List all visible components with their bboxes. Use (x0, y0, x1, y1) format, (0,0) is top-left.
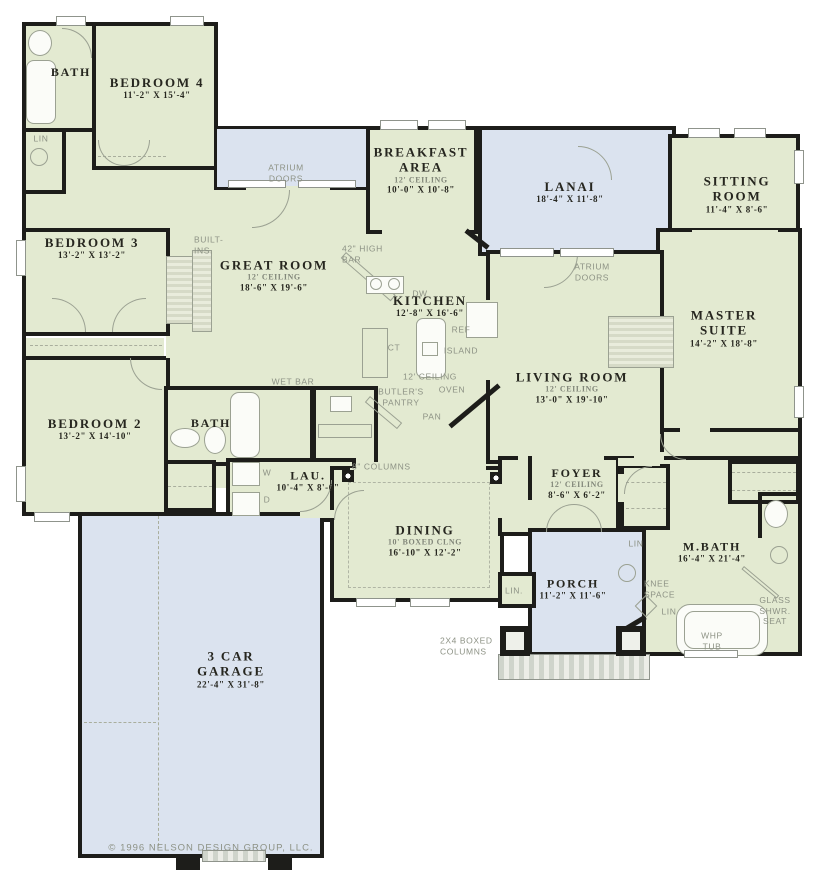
gallery-dashed-line (30, 345, 162, 346)
room-label-foyer: FOYER 12' CEILING 8'-6" X 6'-2" (548, 466, 606, 500)
fixture-wetbar-cabinet (318, 424, 372, 438)
garage-bay-divider (158, 516, 159, 846)
annotation-knee-space: KNEE SPACE (644, 578, 684, 599)
opening-dining-foyer (498, 482, 508, 518)
fixture-toilet-bath1 (28, 30, 52, 56)
annotation-linen: LIN (33, 134, 48, 145)
room-name: SITTING ROOM (699, 173, 775, 204)
annotation-dryer: D (264, 495, 271, 506)
room-name: BEDROOM 3 (45, 235, 140, 250)
window (170, 16, 204, 26)
window (356, 598, 396, 607)
room-name: LIVING ROOM (516, 369, 629, 384)
annotation-glass-shower: GLASS SHWR. SEAT (753, 595, 797, 627)
annotation-ct: CT (388, 343, 401, 354)
annotation-atrium-doors: ATRIUM DOORS (567, 261, 617, 282)
wall-segment (528, 456, 532, 500)
fixture-toilet-mbath (764, 500, 788, 528)
boxed-column (616, 626, 646, 656)
room-label-lanai: LANAI 18'-4" X 11'-8" (536, 179, 604, 205)
annotation-linen: LIN. (505, 586, 523, 597)
room-label-breakfast: BREAKFAST AREA 12' CEILING 10'-0" X 10'-… (373, 145, 469, 196)
annotation-atrium-doors: ATRIUM DOORS (261, 162, 311, 183)
porch-steps (498, 654, 650, 680)
room-name: DINING (388, 522, 462, 537)
fixture-burner (370, 278, 382, 290)
window (794, 150, 804, 184)
fixture-washer (232, 462, 260, 486)
room-name: 3 CAR GARAGE (181, 648, 281, 679)
room-label-greatroom: GREAT ROOM 12' CEILING 18'-6" X 19'-6" (220, 257, 328, 292)
room-label-bedroom4: BEDROOM 4 11'-2" X 15'-4" (110, 75, 205, 101)
room-dims: 11'-2" X 11'-6" (540, 591, 607, 602)
window (380, 120, 418, 130)
annotation-butlers-pantry: BUTLER'S PANTRY (371, 386, 431, 407)
annotation-8in-columns: 8" COLUMNS (352, 462, 411, 473)
room-name: M.BATH (678, 540, 746, 554)
room-dims: 12'-8" X 16'-6" (393, 308, 467, 319)
room-dims: 22'-4" X 31'-8" (181, 679, 281, 690)
room-label-master: MASTER SUITE 14'-2" X 18'-8" (681, 307, 767, 348)
room-dims: 18'-6" X 19'-6" (220, 282, 328, 293)
window (560, 248, 614, 257)
room-name: BATH (191, 416, 231, 430)
opening-master-corridor (680, 424, 710, 434)
annotation-linen: LIN (628, 539, 643, 550)
window (734, 128, 766, 138)
closet-rod (626, 508, 666, 509)
room-dims: 16'-10" X 12'-2" (388, 547, 462, 558)
room-dims: 13'-2" X 13'-2" (45, 250, 140, 261)
fixture-refrigerator (466, 302, 498, 338)
closet-rod (732, 472, 796, 473)
room-label-porch: PORCH 11'-2" X 11'-6" (540, 577, 607, 602)
annotation-washer: W (263, 468, 272, 479)
annotation-high-bar: 42" HIGH BAR (342, 243, 394, 264)
room-name: FOYER (548, 466, 606, 480)
room-dims: 11'-2" X 15'-4" (110, 90, 205, 101)
room-name: KITCHEN (393, 293, 467, 308)
annotation-wet-bar: WET BAR (272, 377, 315, 388)
annotation-ref: REF (452, 325, 471, 336)
fixture-fireplace-hearth (608, 316, 674, 368)
room-ceiling: 10' BOXED CLNG (388, 538, 462, 547)
fixture-wetbar-sink (330, 396, 352, 412)
room-ceiling: 12' CEILING (373, 175, 469, 184)
room-label-laundry: LAU. 10'-4" X 8'-6" (277, 469, 340, 494)
room-name: MASTER SUITE (681, 307, 767, 338)
opening-living-hall (618, 458, 660, 466)
garage-bay-divider (84, 722, 156, 723)
window (56, 16, 86, 26)
room-closet-right (728, 460, 800, 504)
window (410, 598, 450, 607)
room-label-living: LIVING ROOM 12' CEILING 13'-0" X 19'-10" (516, 369, 629, 404)
room-label-bath2: BATH (191, 416, 231, 430)
room-dims: 8'-6" X 6'-2" (548, 489, 606, 500)
annotation-whp-tub: WHP TUB (697, 630, 727, 651)
room-label-bedroom2: BEDROOM 2 13'-2" X 14'-10" (48, 416, 143, 442)
room-name: BATH (51, 65, 91, 79)
annotation-kitchen-ceiling: 12' CEILING (403, 372, 457, 383)
fixture-builtins-greatroom (166, 256, 194, 324)
window (16, 240, 26, 276)
column-8in (490, 472, 502, 484)
room-name: LAU. (277, 469, 340, 483)
fixture-island-sink (422, 342, 438, 356)
room-label-bath1: BATH (51, 65, 91, 79)
floor-plan: BATH BEDROOM 4 11'-2" X 15'-4" BEDROOM 3… (0, 0, 825, 884)
fixture-sink-bath2 (170, 428, 200, 448)
room-name: BEDROOM 2 (48, 416, 143, 431)
fixture-sink-mbath-left (618, 564, 636, 582)
room-name: GREAT ROOM (220, 257, 328, 272)
opening-sitting-master (692, 230, 778, 240)
room-label-bedroom3: BEDROOM 3 13'-2" X 13'-2" (45, 235, 140, 261)
window (794, 386, 804, 418)
opening-breakfast-kitchen (382, 226, 466, 238)
fixture-toilet-bath2 (204, 426, 226, 454)
window (688, 128, 720, 138)
room-dims: 13'-0" X 19'-10" (516, 394, 629, 405)
room-name: BREAKFAST AREA (373, 145, 469, 176)
room-dims: 13'-2" X 14'-10" (48, 431, 143, 442)
fixture-sink-mbath-right (770, 546, 788, 564)
annotation-linen: LIN (661, 607, 676, 618)
annotation-pan: PAN (423, 412, 442, 423)
fixture-counter-left (362, 328, 388, 378)
wall-segment (22, 132, 26, 232)
fixture-builtins-shelf (192, 250, 212, 332)
room-dims: 10'-0" X 10'-8" (373, 185, 469, 196)
room-label-dining: DINING 10' BOXED CLNG 16'-10" X 12'-2" (388, 522, 462, 557)
room-name: LANAI (536, 179, 604, 194)
wall-segment (758, 492, 802, 496)
room-label-mbath: M.BATH 16'-4" X 21'-4" (678, 540, 746, 565)
room-dims: 14'-2" X 18'-8" (681, 338, 767, 349)
annotation-island: ISLAND (444, 346, 478, 357)
window (500, 248, 554, 257)
annotation-oven: OVEN (439, 385, 466, 396)
copyright-text: © 1996 NELSON DESIGN GROUP, LLC. (108, 843, 313, 854)
opening-gallery-greatroom (166, 340, 174, 358)
fixture-tub-bath2 (230, 392, 260, 458)
annotation-dw: DW (412, 289, 427, 300)
wall-segment (758, 492, 762, 538)
room-ceiling: 12' CEILING (516, 385, 629, 394)
annotation-boxed-columns: 2X4 BOXED COLUMNS (440, 635, 510, 656)
fixture-burner (388, 278, 400, 290)
window (428, 120, 466, 130)
wall-segment (22, 336, 26, 358)
room-name: PORCH (540, 577, 607, 591)
room-ceiling: 12' CEILING (220, 273, 328, 282)
closet-rod (168, 486, 212, 487)
garage-column-stub (176, 856, 200, 870)
window (16, 466, 26, 502)
room-label-garage: 3 CAR GARAGE 22'-4" X 31'-8" (181, 648, 281, 689)
room-dims: 16'-4" X 21'-4" (678, 554, 746, 565)
room-label-kitchen: KITCHEN 12'-8" X 16'-6" (393, 293, 467, 319)
room-dims: 11'-4" X 8'-6" (699, 204, 775, 215)
annotation-built-ins: BUILT- INS. (194, 234, 232, 255)
room-ceiling: 12' CEILING (548, 480, 606, 489)
closet-rod (732, 490, 796, 491)
fixture-fan-hall (30, 148, 48, 166)
room-label-sitting: SITTING ROOM 11'-4" X 8'-6" (699, 173, 775, 214)
window (34, 512, 70, 522)
fixture-dryer (232, 492, 260, 516)
wall-segment (798, 428, 802, 458)
garage-column-stub (268, 856, 292, 870)
room-dims: 10'-4" X 8'-6" (277, 483, 340, 494)
room-dims: 18'-4" X 11'-8" (536, 194, 604, 205)
room-name: BEDROOM 4 (110, 75, 205, 90)
